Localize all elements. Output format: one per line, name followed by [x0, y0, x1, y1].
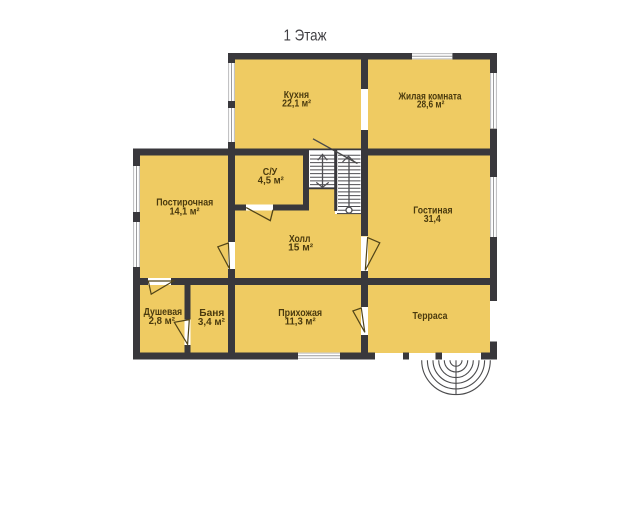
svg-text:2,8 м²: 2,8 м² [149, 316, 176, 327]
svg-text:Терраса: Терраса [413, 311, 448, 322]
svg-text:31,4: 31,4 [424, 214, 441, 225]
svg-text:28,6 м²: 28,6 м² [417, 99, 445, 110]
svg-text:15 м²: 15 м² [288, 243, 314, 254]
svg-text:11,3 м²: 11,3 м² [285, 317, 317, 328]
svg-text:1 Этаж: 1 Этаж [284, 28, 327, 45]
svg-text:22,1 м²: 22,1 м² [282, 98, 312, 109]
svg-text:4,5 м²: 4,5 м² [258, 175, 285, 186]
svg-text:14,1 м²: 14,1 м² [170, 207, 201, 218]
svg-text:3,4 м²: 3,4 м² [198, 317, 226, 328]
